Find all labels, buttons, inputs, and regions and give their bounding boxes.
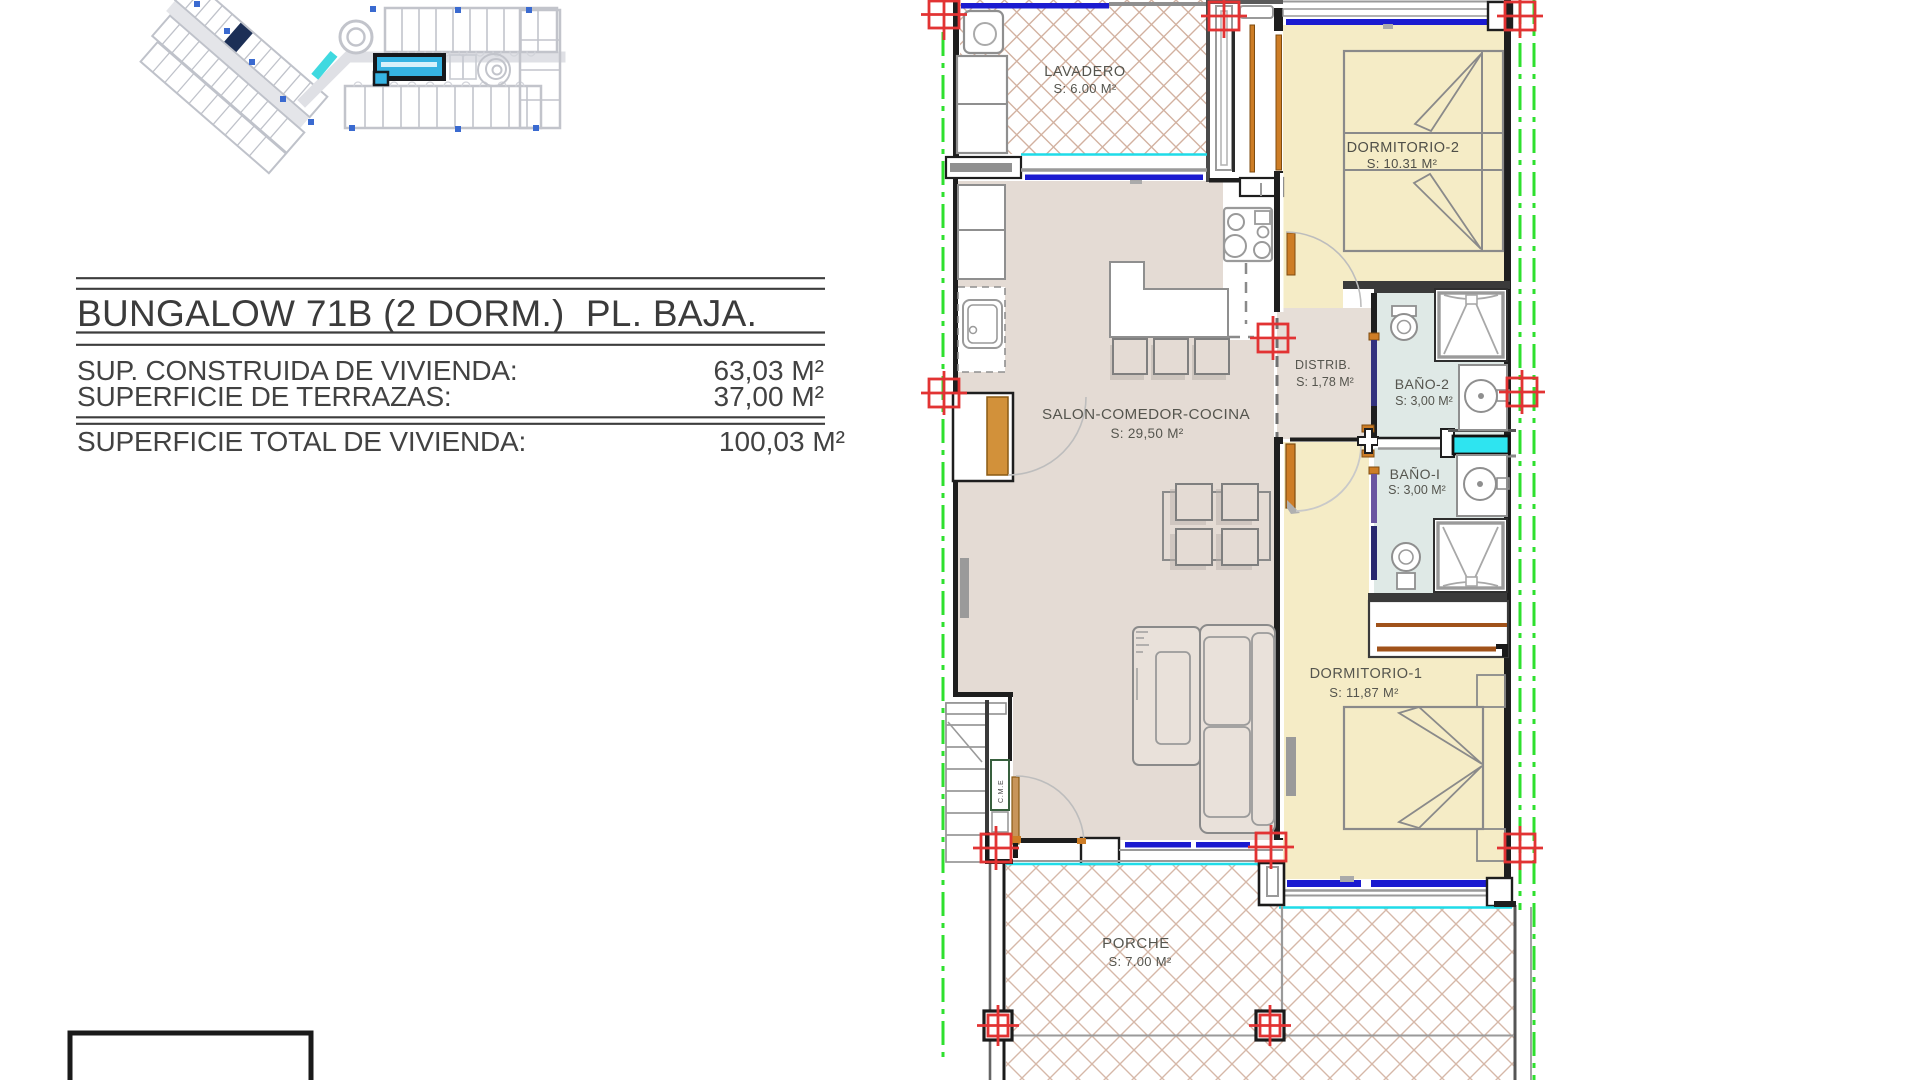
svg-text:S: 3,00 M²: S: 3,00 M² — [1388, 483, 1446, 497]
svg-text:S: 1,78 M²: S: 1,78 M² — [1296, 375, 1354, 389]
svg-text:SUPERFICIE TOTAL DE VIVIENDA:: SUPERFICIE TOTAL DE VIVIENDA: — [77, 426, 526, 457]
svg-text:S: 6.00 M²: S: 6.00 M² — [1054, 81, 1117, 96]
svg-text:BAÑO-2: BAÑO-2 — [1395, 376, 1450, 392]
svg-text:BAÑO-I: BAÑO-I — [1390, 466, 1441, 482]
svg-text:37,00 M²: 37,00 M² — [714, 381, 825, 412]
svg-text:S: 7.00 M²: S: 7.00 M² — [1109, 954, 1172, 969]
svg-text:S: 11,87 M²: S: 11,87 M² — [1329, 685, 1399, 700]
svg-text:PORCHE: PORCHE — [1102, 935, 1170, 952]
svg-text:DORMITORIO-2: DORMITORIO-2 — [1347, 140, 1460, 156]
svg-text:DORMITORIO-1: DORMITORIO-1 — [1310, 666, 1423, 682]
svg-text:SUPERFICIE DE TERRAZAS:: SUPERFICIE DE TERRAZAS: — [77, 381, 452, 412]
svg-text:DISTRIB.: DISTRIB. — [1295, 358, 1351, 372]
svg-text:S: 3,00 M²: S: 3,00 M² — [1395, 394, 1453, 408]
svg-text:SALON-COMEDOR-COCINA: SALON-COMEDOR-COCINA — [1042, 406, 1250, 423]
svg-text:S: 10.31 M²: S: 10.31 M² — [1367, 156, 1438, 171]
svg-text:BUNGALOW 71B (2 DORM.) PL. BA: BUNGALOW 71B (2 DORM.) PL. BAJA. — [77, 293, 757, 334]
svg-text:100,03 M²: 100,03 M² — [719, 426, 845, 457]
svg-text:LAVADERO: LAVADERO — [1044, 64, 1126, 80]
svg-text:C.M.E: C.M.E — [998, 780, 1005, 803]
svg-text:S: 29,50 M²: S: 29,50 M² — [1110, 426, 1183, 441]
